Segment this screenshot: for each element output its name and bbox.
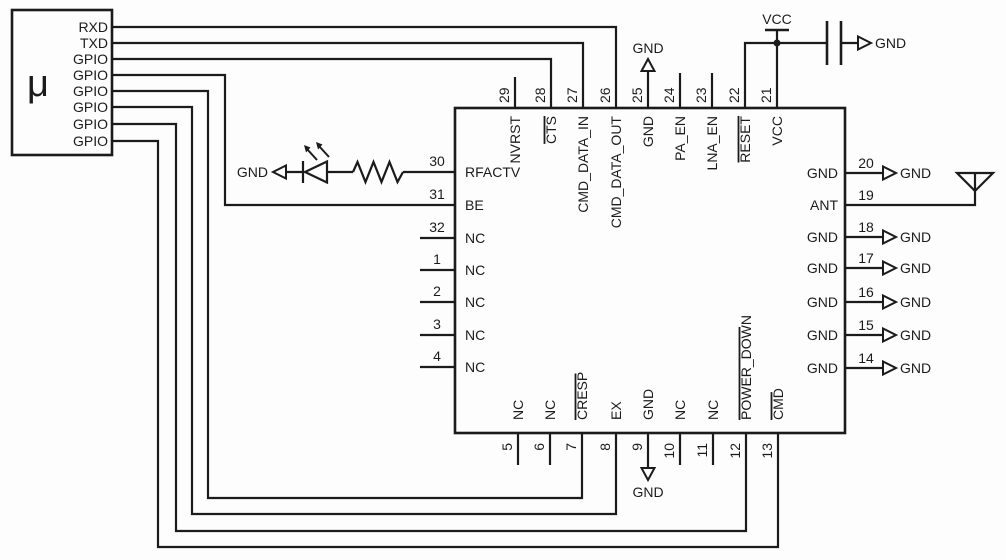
pin-label: NVRST [507,116,523,164]
gnd-label: GND [900,260,931,276]
wire [112,75,455,205]
gnd-label: GND [237,164,268,180]
mcu-label: μ [27,63,49,105]
pin-label: NC [465,359,485,375]
pin-label: GND [807,294,838,310]
pin-label: NC [465,230,485,246]
pin-number: 1 [433,251,441,267]
pin-number: 23 [693,87,709,103]
pin-number: 29 [496,87,512,103]
pin-number: 32 [429,219,445,235]
gnd-label: GND [900,294,931,310]
led-emission-arrow-icon [319,146,329,157]
pin-label: GND [640,389,656,420]
pin-number: 5 [499,443,515,451]
gnd-label: GND [632,40,663,56]
schematic: μRXDTXDGPIOGPIOGPIOGPIOGPIOGPIO29NVRST28… [0,0,1006,560]
pin-number: 24 [661,87,677,103]
wire [112,141,778,547]
pin-label: CMD [770,388,786,420]
junction-dot [774,40,781,47]
pin-label: NC [672,400,688,420]
wire [112,107,616,514]
pin-number: 13 [759,443,775,459]
gnd-terminal-icon [883,362,896,375]
gnd-terminal-icon [883,329,896,342]
pin-label: NC [465,327,485,343]
gnd-terminal-icon [273,166,286,179]
pin-number: 10 [661,443,677,459]
schematic-canvas: μRXDTXDGPIOGPIOGPIOGPIOGPIOGPIO29NVRST28… [0,0,1006,560]
vcc-label: VCC [762,11,792,27]
gnd-label: GND [900,327,931,343]
pin-label: CRESP [574,372,590,420]
pin-label: RFACTV [465,164,521,180]
pin-label: CMD_DATA_OUT [608,116,624,229]
pin-label: GND [807,360,838,376]
gnd-terminal-icon [883,231,896,244]
wire [112,59,551,108]
pin-label: POWER_DOWN [738,315,754,420]
pin-number: 31 [429,186,445,202]
gnd-terminal-icon [883,296,896,309]
gnd-label: GND [900,360,931,376]
pin-label: LNA_EN [704,116,720,170]
pin-number: 18 [858,219,874,235]
pin-label: GND [807,260,838,276]
mcu-pin-label: TXD [80,35,108,51]
pin-label: NC [510,400,526,420]
pin-number: 6 [531,443,547,451]
pin-label: NC [465,294,485,310]
gnd-label: GND [900,229,931,245]
gnd-terminal-icon [642,468,655,480]
pin-label: GND [807,229,838,245]
mcu-pin-label: RXD [78,19,108,35]
pin-number: 26 [597,87,613,103]
mcu-pin-label: GPIO [73,51,108,67]
mcu-pin-label: GPIO [73,133,108,149]
pin-label: CTS [543,116,559,144]
pin-label: RESET [737,116,753,163]
pin-number: 11 [694,443,710,458]
pin-number: 25 [629,87,645,103]
pin-label: GND [807,327,838,343]
pin-number: 15 [858,317,874,333]
pin-label: GND [640,116,656,147]
pin-number: 19 [858,187,874,203]
gnd-terminal-icon [642,59,655,71]
pin-label: CMD_DATA_IN [575,116,591,213]
mcu-pin-label: GPIO [73,116,108,132]
pin-number: 2 [433,283,441,299]
pin-label: NC [465,262,485,278]
led-emission-arrow-icon [307,149,317,160]
pin-number: 14 [858,350,874,366]
pin-number: 16 [858,284,874,300]
pin-label: PA_EN [672,116,688,161]
mcu-pin-label: GPIO [73,83,108,99]
pin-number: 17 [858,250,874,266]
pin-number: 12 [727,443,743,459]
pin-label: NC [705,400,721,420]
pin-label: GND [807,165,838,181]
pin-number: 4 [433,348,441,364]
pin-number: 27 [564,87,580,103]
gnd-terminal-icon [883,167,896,180]
gnd-terminal-icon [883,262,896,275]
mcu-pin-label: GPIO [73,67,108,83]
gnd-label: GND [900,165,931,181]
pin-number: 28 [532,87,548,103]
pin-label: NC [542,400,558,420]
pin-number: 9 [629,443,645,451]
pin-label: ANT [810,197,838,213]
gnd-label: GND [875,35,906,51]
gnd-terminal-icon [858,37,871,50]
pin-label: EX [608,401,624,420]
pin-number: 7 [563,443,579,451]
pin-number: 30 [429,153,445,169]
pin-number: 22 [726,87,742,103]
led-icon [305,162,327,183]
pin-label: VCC [769,116,785,146]
mcu-pin-label: GPIO [73,99,108,115]
pin-number: 21 [758,87,774,103]
pin-number: 20 [858,155,874,171]
gnd-label: GND [632,484,663,500]
pin-number: 8 [597,443,613,451]
resistor-icon [353,162,403,182]
pin-label: BE [465,197,484,213]
pin-number: 3 [433,316,441,332]
